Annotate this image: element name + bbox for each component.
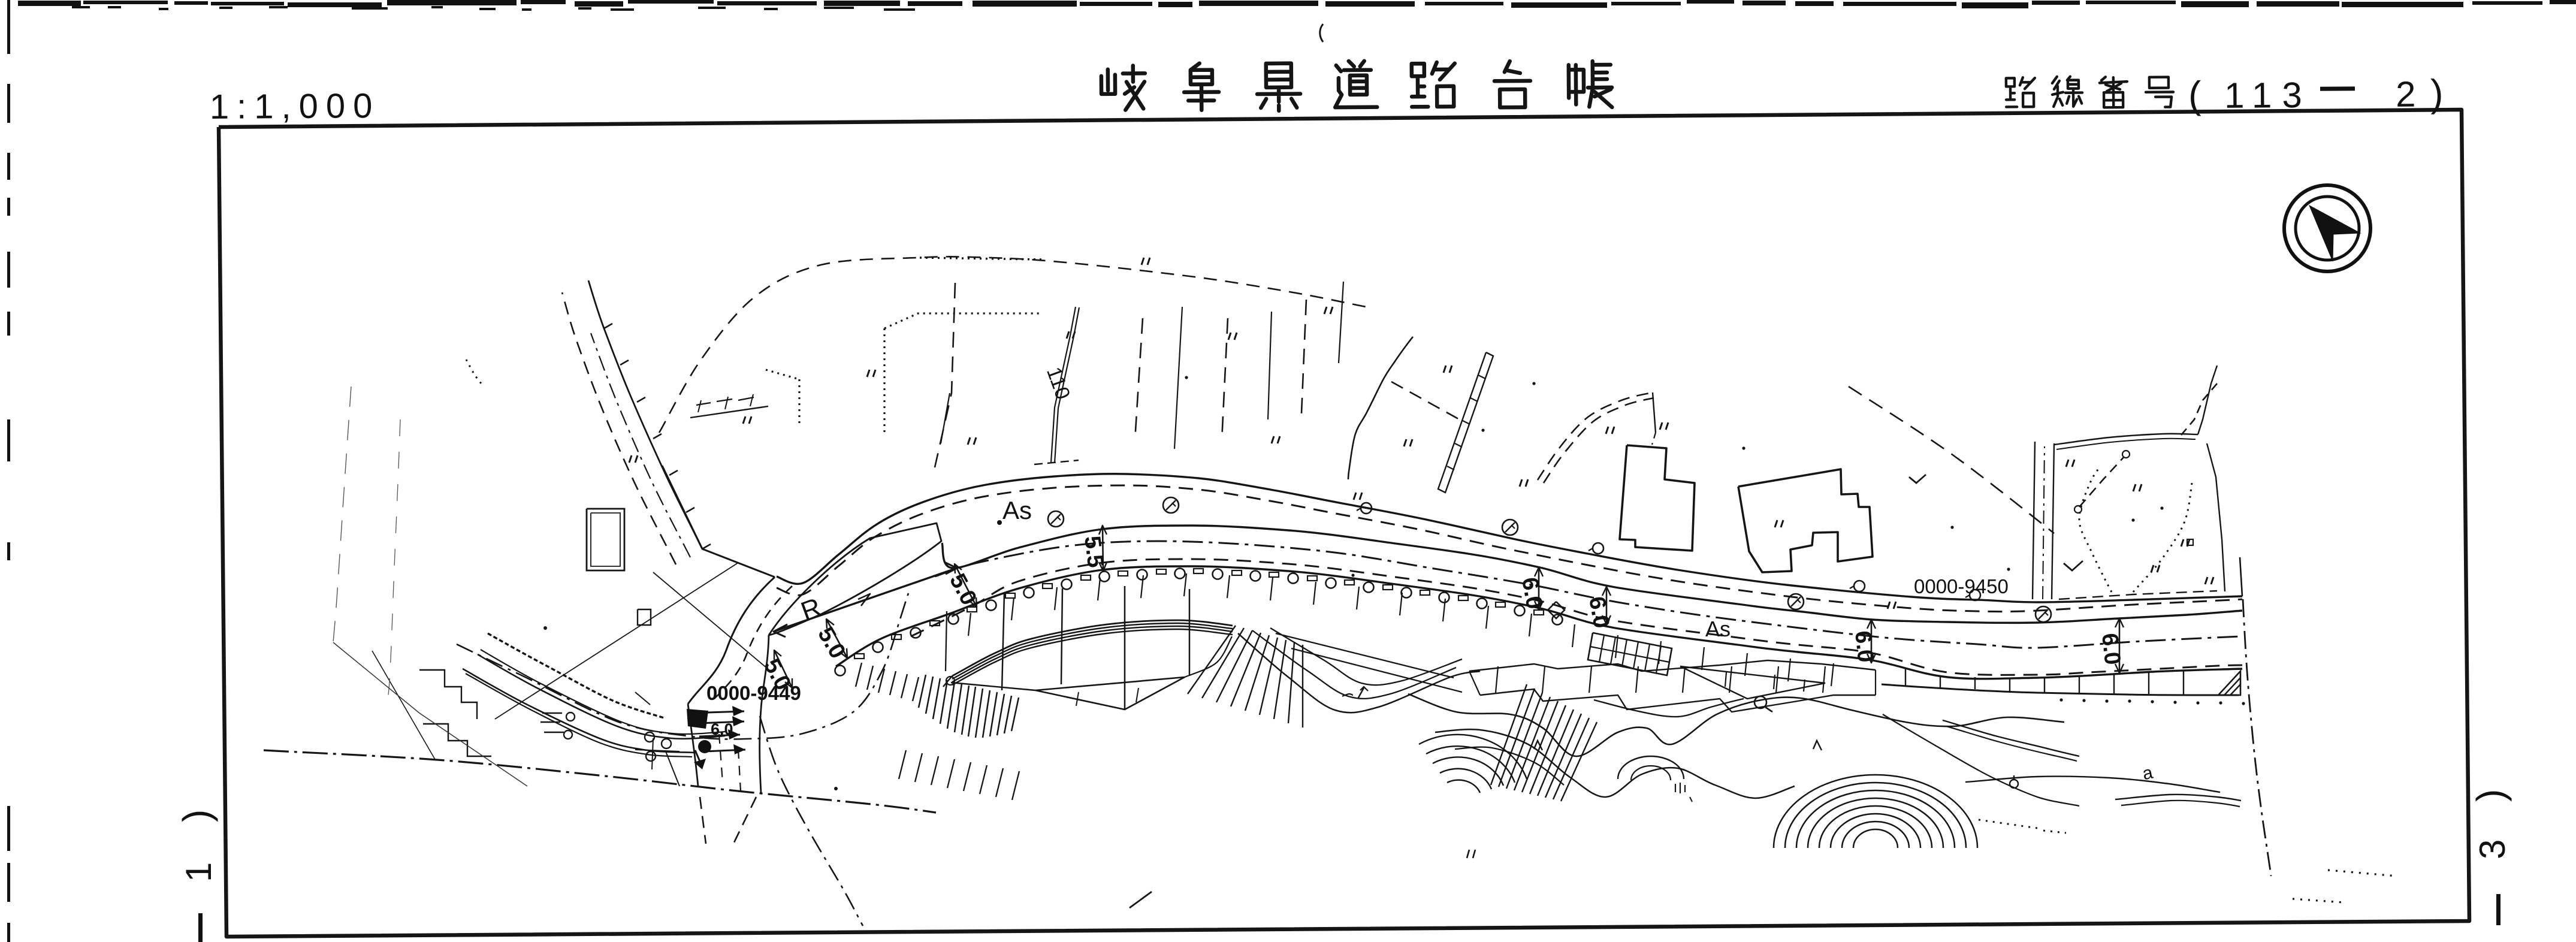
svg-text:2: 2 [2396,74,2416,114]
svg-text:As: As [1002,496,1032,524]
svg-text:1: 1 [179,862,219,882]
svg-text:6.0: 6.0 [2097,632,2125,666]
svg-text:As: As [1705,617,1731,641]
svg-text:): ) [175,810,218,822]
svg-text:1:1,000: 1:1,000 [210,86,380,126]
svg-text:113: 113 [2224,75,2312,116]
svg-text:): ) [2469,789,2512,802]
svg-text:): ) [2430,71,2444,114]
svg-text:5.5: 5.5 [1079,535,1108,569]
svg-text:0000-9450: 0000-9450 [1914,575,2009,597]
svg-text:6.0: 6.0 [1850,630,1878,664]
svg-text:3: 3 [2472,840,2512,859]
svg-text:(: ( [2188,73,2201,116]
